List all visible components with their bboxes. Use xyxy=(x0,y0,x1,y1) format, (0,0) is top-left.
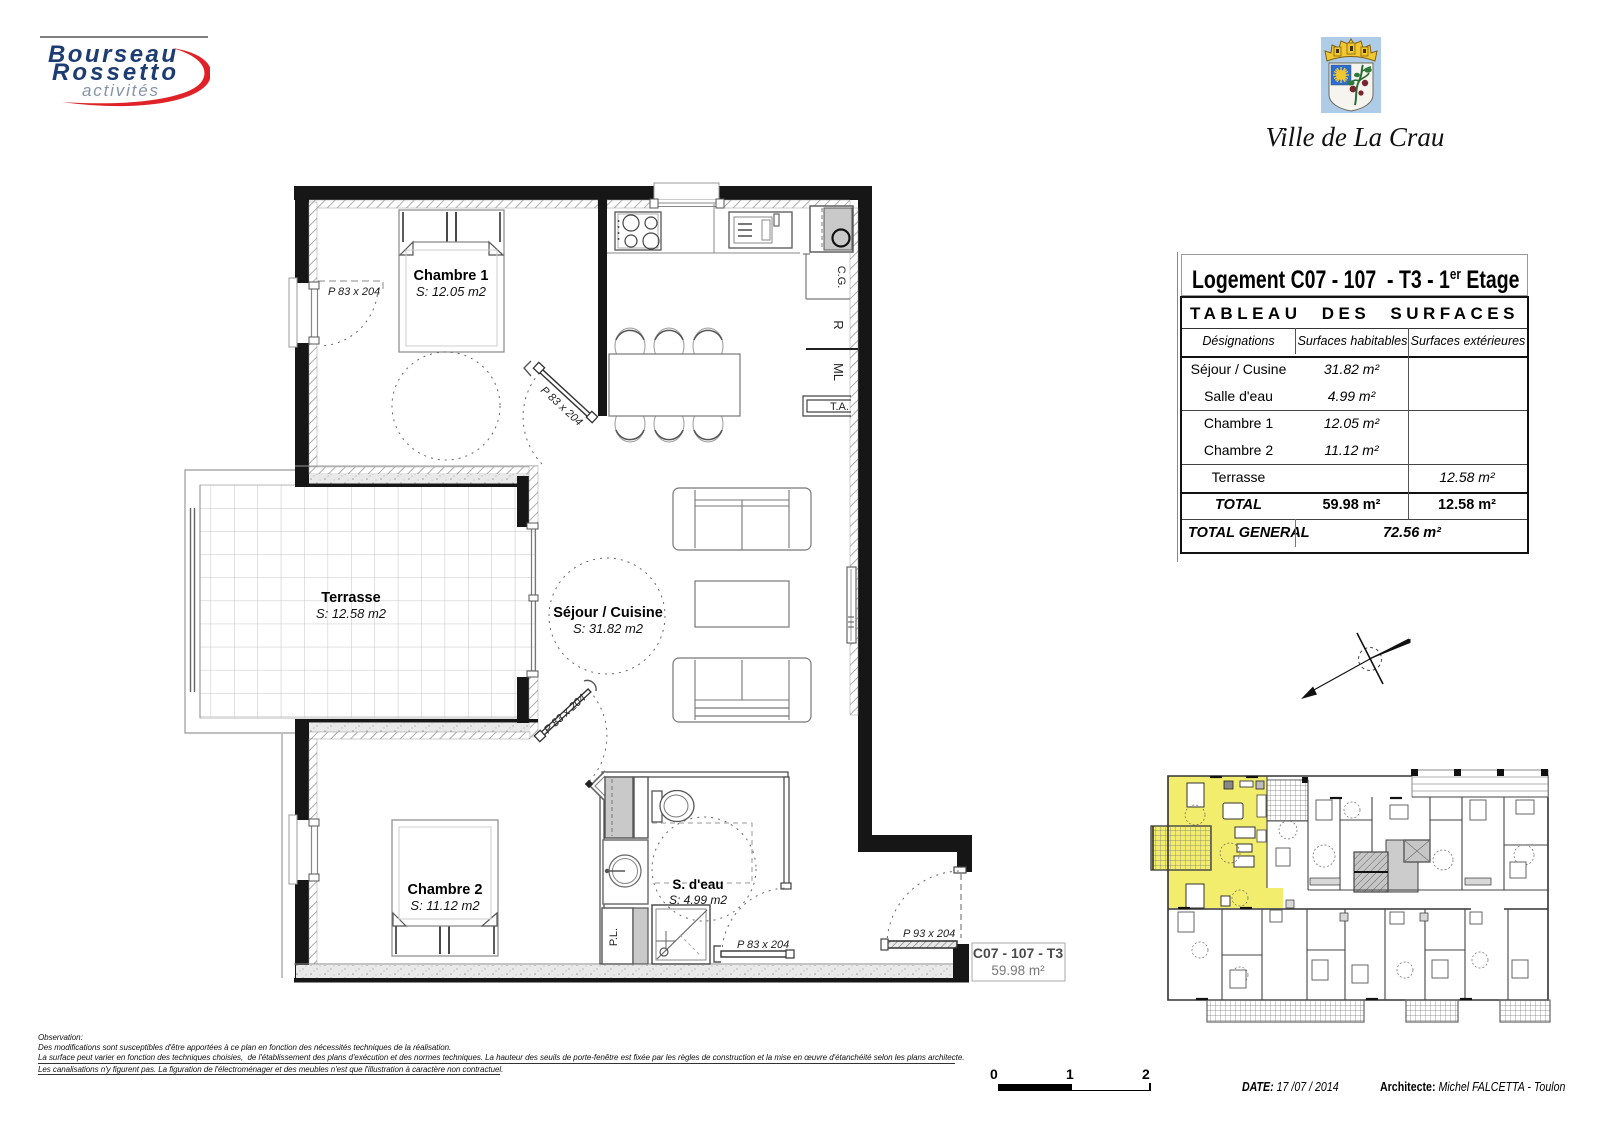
svg-text:Chambre 2: Chambre 2 xyxy=(408,882,483,898)
svg-text:Terrasse: Terrasse xyxy=(321,590,380,606)
svg-text:S: 12.05 m2: S: 12.05 m2 xyxy=(416,284,487,299)
svg-text:C07 - 107 - T3: C07 - 107 - T3 xyxy=(973,945,1063,961)
svg-text:R: R xyxy=(831,320,846,329)
svg-text:S: 11.12 m2: S: 11.12 m2 xyxy=(410,898,480,913)
svg-text:P 83 x 204: P 83 x 204 xyxy=(737,939,789,951)
svg-text:P 83 x 204: P 83 x 204 xyxy=(328,286,380,298)
svg-text:S: 12.58 m2: S: 12.58 m2 xyxy=(316,606,387,621)
svg-text:P 83 x 204: P 83 x 204 xyxy=(542,692,589,736)
svg-text:ML: ML xyxy=(831,363,846,381)
svg-text:P.L.: P.L. xyxy=(608,928,620,946)
svg-text:Chambre 1: Chambre 1 xyxy=(414,268,489,284)
svg-text:S. d'eau: S. d'eau xyxy=(672,877,723,892)
svg-text:S: 4.99 m2: S: 4.99 m2 xyxy=(669,893,727,907)
svg-text:T.A.: T.A. xyxy=(830,401,849,413)
svg-text:59.98 m²: 59.98 m² xyxy=(991,963,1045,978)
svg-text:S: 31.82 m2: S: 31.82 m2 xyxy=(573,621,644,636)
svg-text:C.G.: C.G. xyxy=(835,266,847,289)
svg-text:Séjour / Cuisine: Séjour / Cuisine xyxy=(553,605,663,621)
svg-text:P 93 x 204: P 93 x 204 xyxy=(903,928,955,940)
